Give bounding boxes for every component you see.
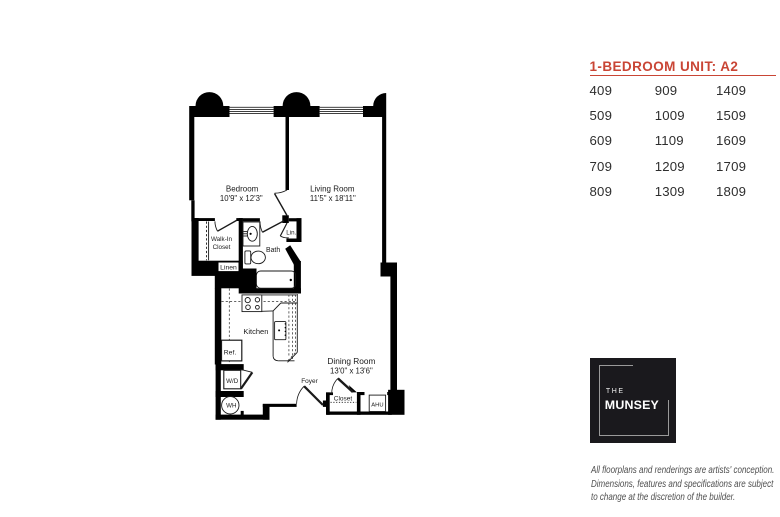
svg-text:Closet: Closet [213,244,231,251]
svg-text:Kitchen: Kitchen [243,327,268,336]
svg-text:Linen: Linen [220,264,237,271]
svg-text:10'9" x 12'3": 10'9" x 12'3" [220,194,263,203]
svg-text:Foyer: Foyer [301,378,318,385]
svg-text:AHU: AHU [371,402,383,408]
svg-text:Bath: Bath [266,247,280,254]
svg-text:Living Room: Living Room [310,185,355,194]
svg-text:Closet: Closet [334,395,353,402]
svg-text:13'0" x 13'6": 13'0" x 13'6" [330,367,373,376]
svg-text:W/D: W/D [226,378,239,385]
svg-text:11'5" x 18'11": 11'5" x 18'11" [310,194,356,203]
svg-text:Dining Room: Dining Room [327,356,375,366]
svg-text:Ref.: Ref. [224,350,237,357]
svg-text:Bedroom: Bedroom [226,185,259,194]
svg-text:Walk-In: Walk-In [211,236,233,243]
svg-text:Lin.: Lin. [286,230,296,237]
svg-text:WH: WH [226,403,236,410]
